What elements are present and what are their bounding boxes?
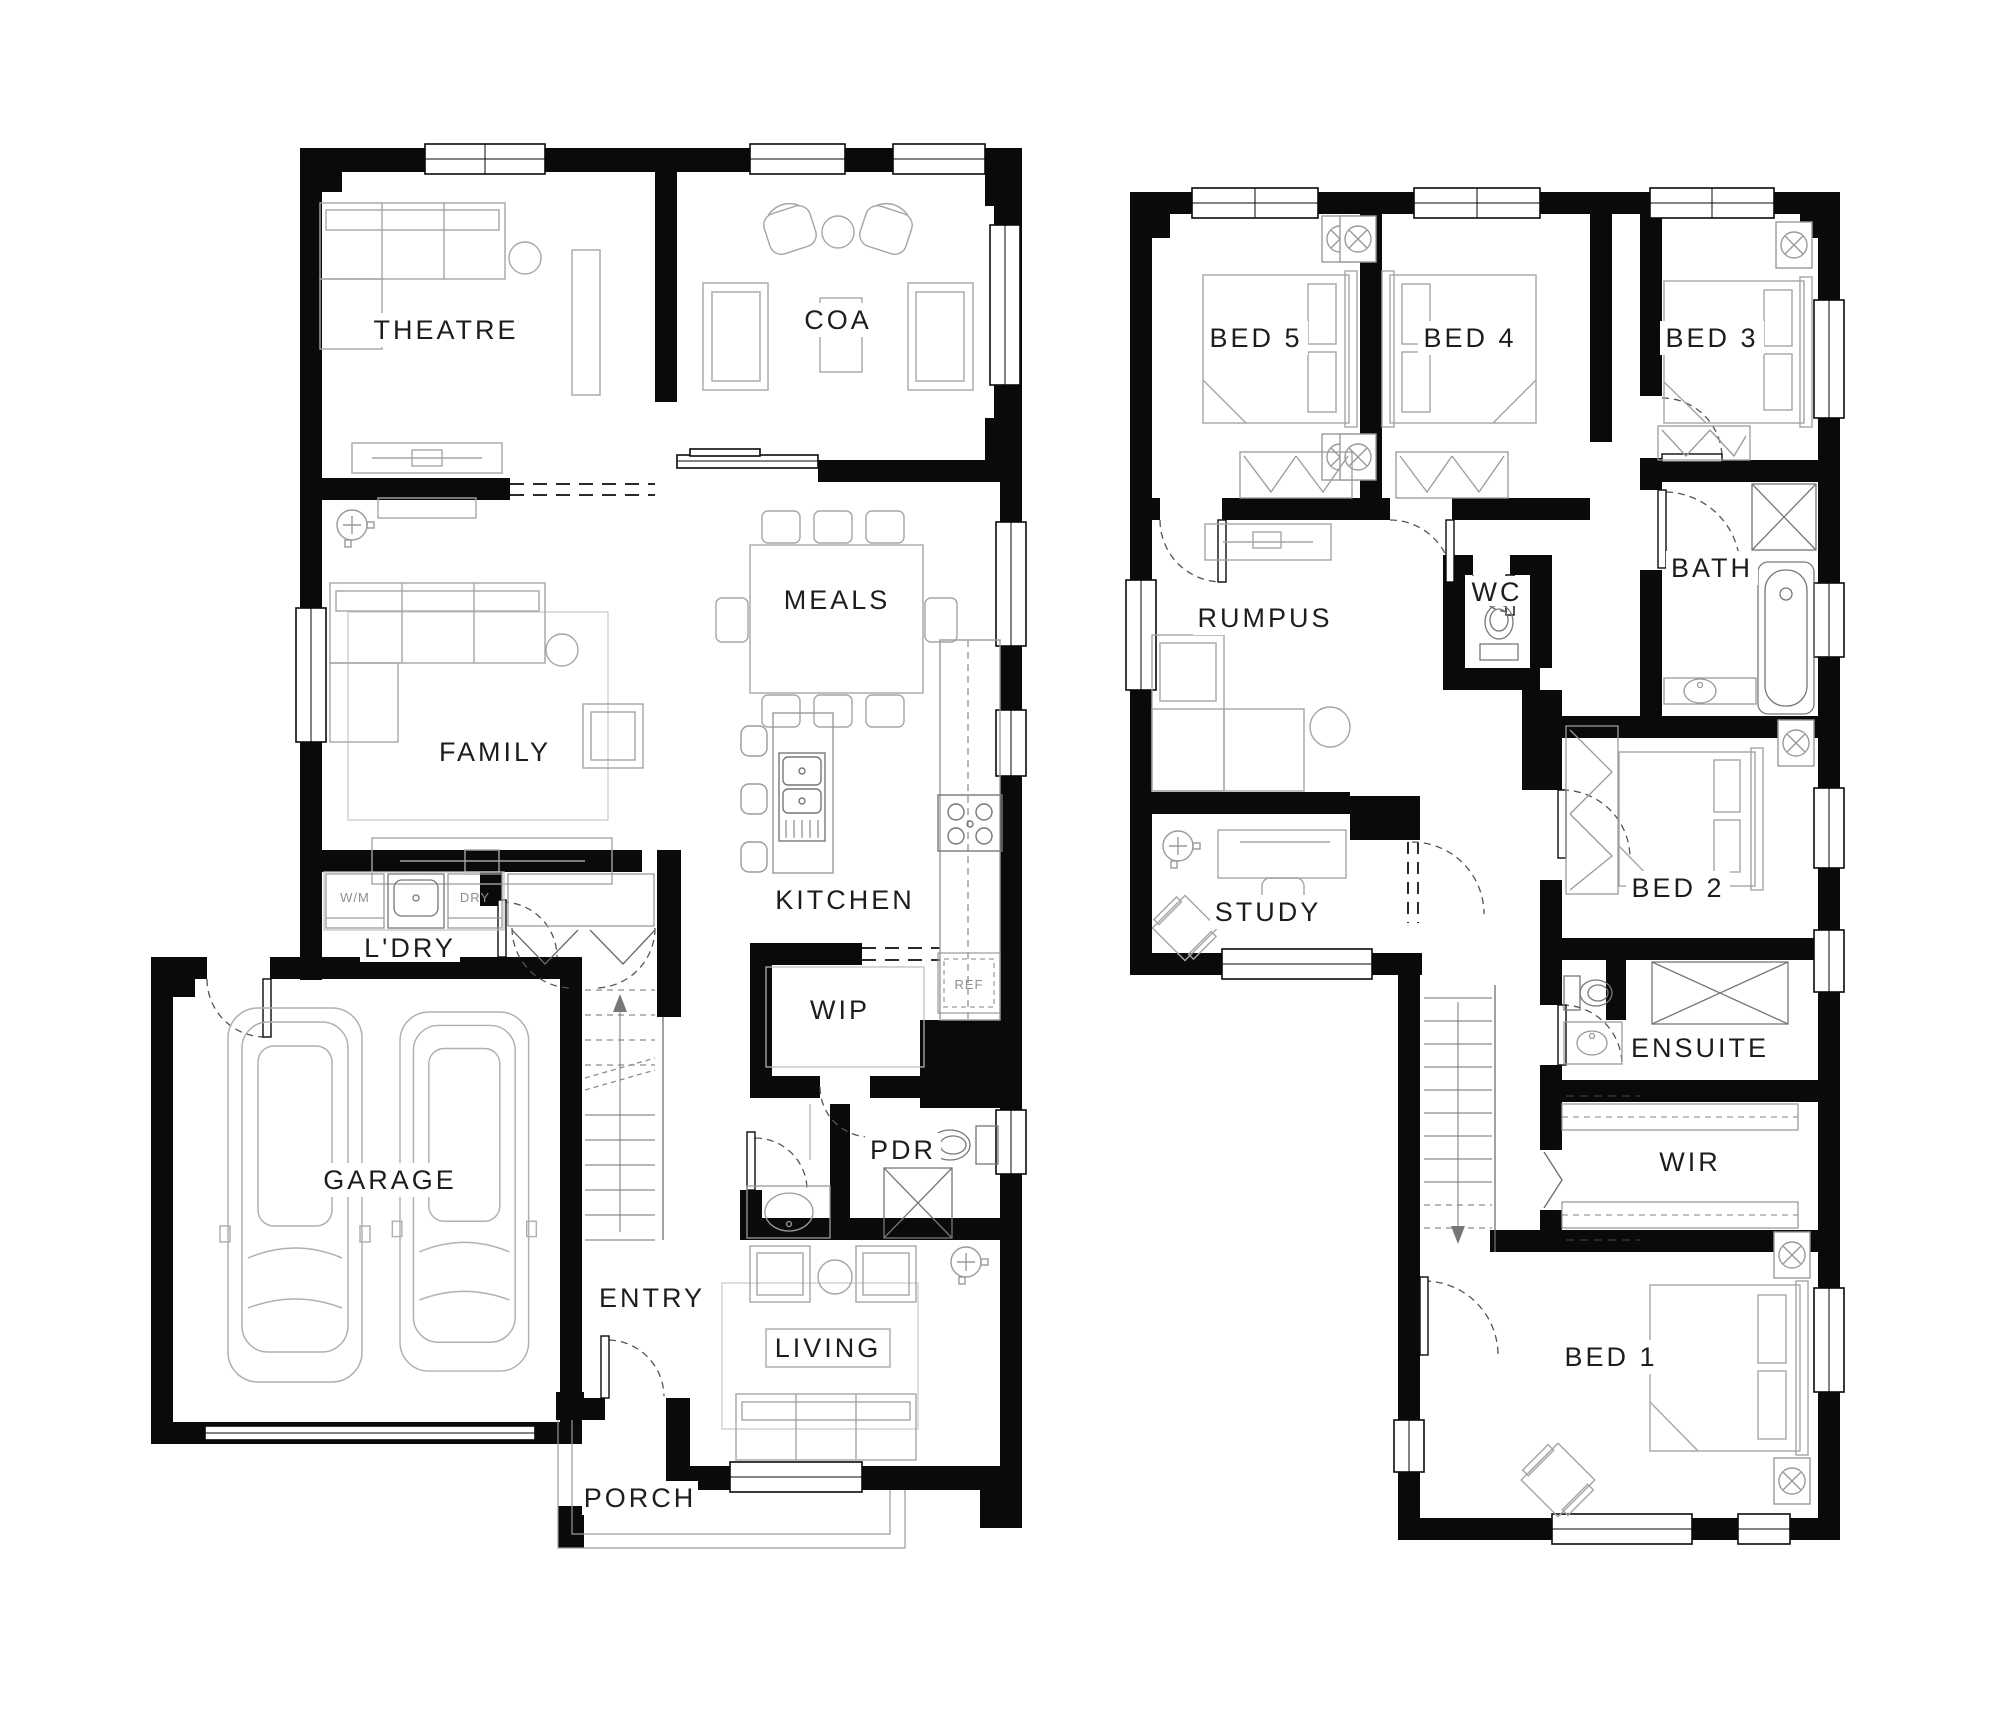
room-label-entry: ENTRY <box>596 1281 708 1315</box>
room-label-porch: PORCH <box>582 1481 698 1515</box>
room-label-study: STUDY <box>1210 895 1326 929</box>
window <box>1814 300 1844 418</box>
family-furniture <box>330 498 643 884</box>
svg-text:GARAGE: GARAGE <box>323 1165 457 1195</box>
svg-text:LIVING: LIVING <box>775 1333 882 1363</box>
room-label-rumpus: RUMPUS <box>1193 601 1337 635</box>
room-label-bed2: BED 2 <box>1626 871 1730 905</box>
window <box>1814 1288 1844 1392</box>
first-walls <box>1130 192 1840 1540</box>
svg-text:PORCH: PORCH <box>584 1483 697 1513</box>
door-leaf <box>1662 454 1722 462</box>
svg-text:BED 2: BED 2 <box>1631 873 1724 903</box>
window <box>750 144 845 174</box>
room-label-bed4: BED 4 <box>1418 321 1522 355</box>
tub-chair <box>759 197 819 257</box>
svg-text:REF: REF <box>955 977 984 992</box>
door-leaf <box>1446 520 1454 582</box>
svg-text:ENTRY: ENTRY <box>599 1283 705 1313</box>
svg-text:WC: WC <box>1472 577 1523 607</box>
room-label-wc: WC <box>1467 576 1527 607</box>
first-beds <box>1203 216 1814 1504</box>
svg-text:BATH: BATH <box>1671 553 1753 583</box>
room-label-bath: BATH <box>1666 551 1758 585</box>
door-leaf <box>747 1132 755 1190</box>
room-label-meals: MEALS <box>777 583 897 617</box>
svg-text:PDR: PDR <box>870 1135 936 1165</box>
svg-text:WIP: WIP <box>810 995 870 1025</box>
bed2-bed <box>1619 748 1763 890</box>
door-leaf <box>1420 1277 1428 1355</box>
svg-text:STUDY: STUDY <box>1215 897 1322 927</box>
rumpus-furniture <box>1152 524 1350 791</box>
svg-text:RUMPUS: RUMPUS <box>1197 603 1332 633</box>
room-label-coa: COA <box>794 303 882 337</box>
svg-text:WIR: WIR <box>1659 1147 1720 1177</box>
svg-text:COA: COA <box>804 305 872 335</box>
first-windows <box>1126 188 1844 1544</box>
window <box>1650 188 1774 218</box>
wir-bifold-door <box>1544 1152 1562 1208</box>
svg-text:DRY: DRY <box>460 890 490 905</box>
window <box>996 1110 1026 1174</box>
room-label-wip: WIP <box>802 993 878 1027</box>
window <box>1738 1514 1790 1544</box>
room-label-living: LIVING <box>766 1329 890 1367</box>
ground-floor-plan: THEATRE COA MEALS FAMILY KITCHEN L'DRY W… <box>151 144 1026 1548</box>
window <box>1814 788 1844 868</box>
room-label-bed3: BED 3 <box>1660 321 1764 355</box>
window <box>1394 1420 1424 1472</box>
appliance-label-dryer: DRY <box>460 890 490 905</box>
svg-text:THEATRE: THEATRE <box>373 315 518 345</box>
door-leaf <box>1658 490 1666 568</box>
svg-text:L'DRY: L'DRY <box>364 933 456 963</box>
garage-panel-door <box>205 1426 535 1440</box>
room-label-theatre: THEATRE <box>368 313 524 347</box>
window <box>1552 1514 1692 1544</box>
door-leaf <box>1558 1005 1566 1065</box>
room-label-family: FAMILY <box>431 735 559 769</box>
room-label-garage: GARAGE <box>320 1163 460 1197</box>
bed1-bed <box>1650 1281 1808 1455</box>
svg-text:BED 1: BED 1 <box>1564 1342 1657 1372</box>
svg-text:BED 5: BED 5 <box>1209 323 1302 353</box>
window <box>1414 188 1540 218</box>
floor-plan-drawing: THEATRE COA MEALS FAMILY KITCHEN L'DRY W… <box>0 0 2000 1724</box>
room-label-kitchen: KITCHEN <box>771 883 919 917</box>
window <box>296 608 326 742</box>
room-label-pdr: PDR <box>865 1133 941 1167</box>
floor-plan-page: THEATRE COA MEALS FAMILY KITCHEN L'DRY W… <box>0 0 2000 1724</box>
window <box>1192 188 1318 218</box>
pdr-fixtures <box>747 1104 998 1238</box>
window <box>425 144 545 174</box>
door-leaf <box>1558 790 1566 858</box>
coa-furniture <box>703 197 973 390</box>
bath-fixtures <box>1664 484 1816 714</box>
bed1-chair <box>1517 1439 1599 1521</box>
svg-text:ENSUITE: ENSUITE <box>1631 1033 1769 1063</box>
room-label-wir: WIR <box>1650 1145 1730 1179</box>
room-label-ensuite: ENSUITE <box>1626 1031 1774 1065</box>
window <box>893 144 985 174</box>
window <box>990 225 1020 385</box>
svg-text:W/M: W/M <box>340 890 370 905</box>
window <box>730 1462 862 1492</box>
first-floor-plan: BED 5 BED 4 BED 3 BATH WC RUMPUS BED 2 S… <box>1126 188 1844 1544</box>
room-label-laundry: L'DRY <box>360 932 460 963</box>
room-label-bed5: BED 5 <box>1204 321 1308 355</box>
appliance-label-washer: W/M <box>340 890 370 905</box>
svg-text:MEALS: MEALS <box>784 585 891 615</box>
front-door-leaf <box>601 1336 609 1398</box>
first-opening-lines <box>1408 842 1640 1240</box>
svg-text:BED 4: BED 4 <box>1423 323 1516 353</box>
window <box>1814 583 1844 657</box>
svg-text:KITCHEN: KITCHEN <box>775 885 915 915</box>
svg-text:BED 3: BED 3 <box>1665 323 1758 353</box>
sliding-door <box>677 449 818 468</box>
stair-direction-arrow <box>613 994 627 1012</box>
window <box>996 522 1026 646</box>
door-leaf <box>1218 520 1226 582</box>
svg-text:FAMILY: FAMILY <box>439 737 551 767</box>
window <box>1222 949 1372 979</box>
ground-stairs <box>585 990 663 1240</box>
appliance-label-fridge: REF <box>955 977 984 992</box>
tub-chair <box>857 197 917 257</box>
meals-furniture <box>716 511 957 727</box>
stair-direction-arrow <box>1451 1226 1465 1244</box>
first-stairs <box>1424 985 1495 1252</box>
ground-walls <box>151 148 1022 1548</box>
room-label-bed1: BED 1 <box>1559 1340 1663 1374</box>
window <box>1814 930 1844 992</box>
